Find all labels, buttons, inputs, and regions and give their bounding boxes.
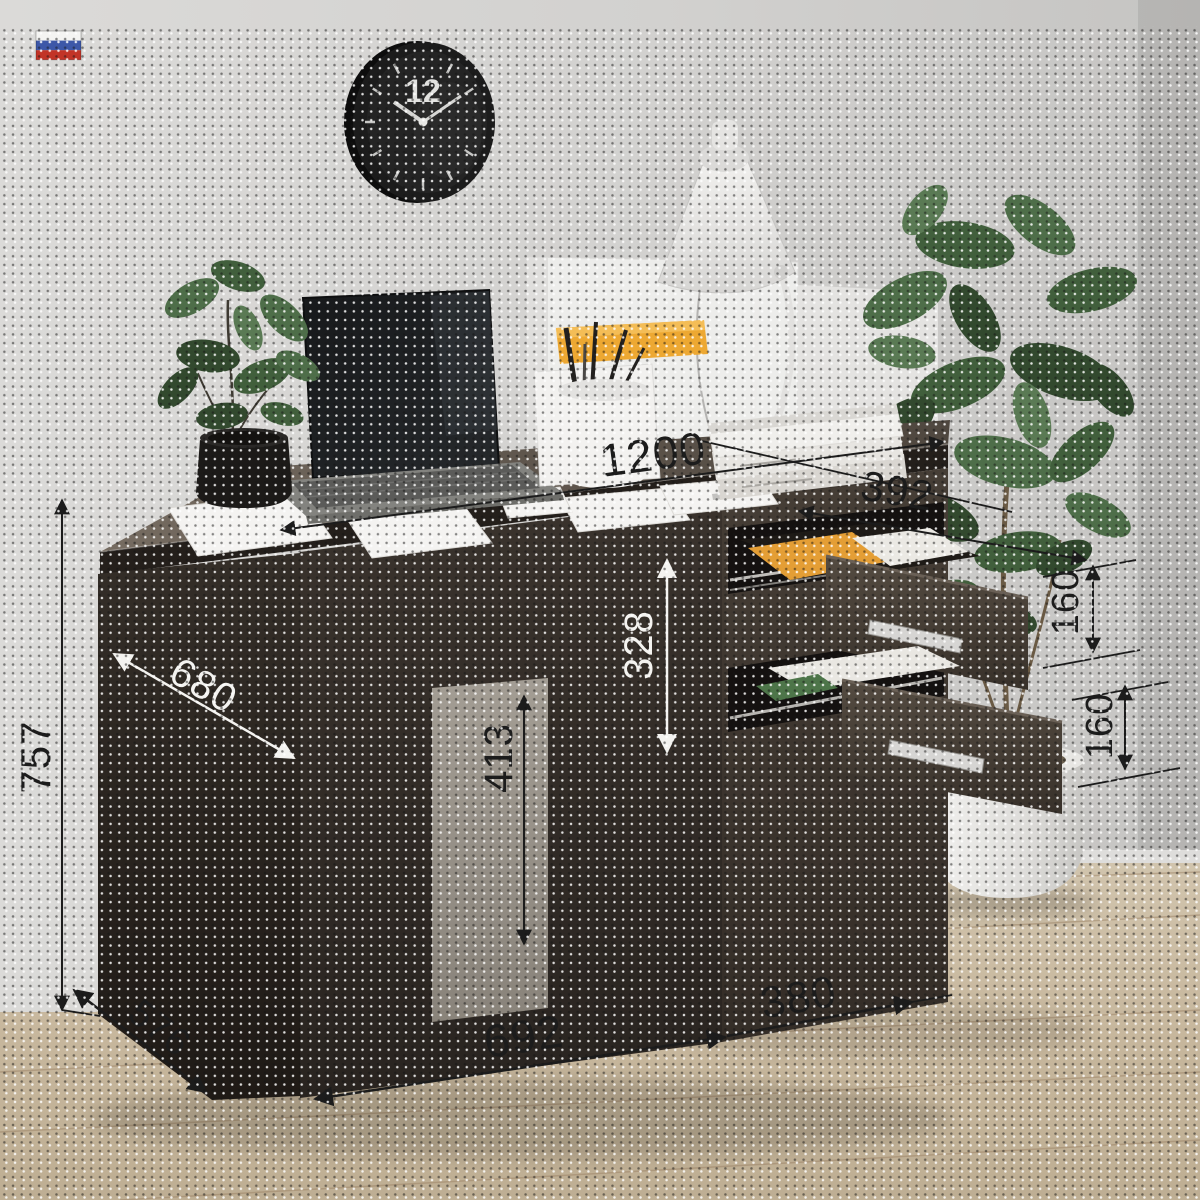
wall-corner-shade — [1138, 0, 1200, 866]
wall-clock: 12 — [344, 41, 495, 203]
scene-canvas: 12 — [0, 0, 1200, 1200]
russia-flag-icon — [36, 31, 81, 60]
label-upper-clearance: 328 — [617, 610, 661, 680]
label-overall-height: 757 — [12, 720, 59, 793]
label-bottom-drawer-height: 160 — [1079, 693, 1121, 759]
clock-numeral: 12 — [405, 73, 441, 109]
scene: 12 — [0, 0, 1200, 1200]
label-lower-clearance: 413 — [477, 723, 521, 793]
label-top-drawer-height: 160 — [1045, 569, 1087, 635]
black-plant-pot — [196, 438, 292, 508]
